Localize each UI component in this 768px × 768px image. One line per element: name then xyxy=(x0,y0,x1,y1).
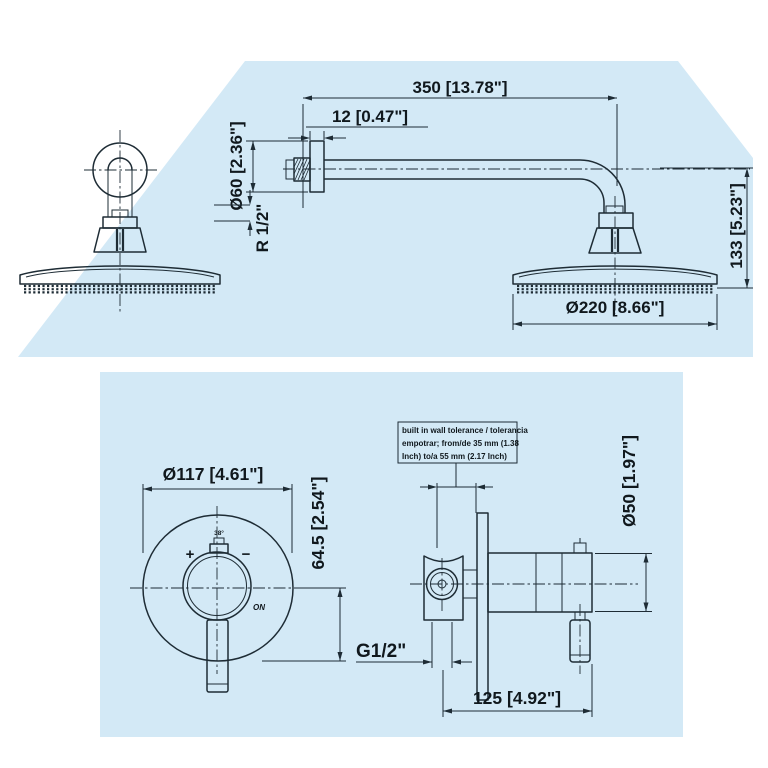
plus-symbol: + xyxy=(186,546,195,563)
dim-thread-r12-label: R 1/2" xyxy=(253,204,272,253)
minus-symbol: − xyxy=(242,546,251,563)
dim-body-length-label: 125 [4.92"] xyxy=(473,688,561,708)
shower-spec-drawing: 350 [13.78"] 12 [0.47"] Ø60 [2.36"] R 1/… xyxy=(0,0,768,768)
on-label: ON xyxy=(253,603,265,612)
dim-body-diameter-label: Ø50 [1.97"] xyxy=(619,435,639,527)
note-line-3: Inch) to/a 55 mm (2.17 Inch) xyxy=(402,452,507,461)
temp-38-label: 38° xyxy=(214,529,224,537)
note-line-1: built in wall tolerance / tolerancia xyxy=(402,426,528,435)
dim-center-to-bottom-label: 64.5 [2.54"] xyxy=(308,477,328,570)
dim-escutcheon-label: Ø117 [4.61"] xyxy=(163,464,264,484)
dim-head-diameter-label: Ø220 [8.66"] xyxy=(566,298,665,317)
dim-drop-height-label: 133 [5.23"] xyxy=(727,183,746,269)
dim-arm-length-label: 350 [13.78"] xyxy=(412,78,507,97)
technical-drawing-page: 350 [13.78"] 12 [0.47"] Ø60 [2.36"] R 1/… xyxy=(0,0,768,768)
note-line-2: empotrar; from/de 35 mm (1.38 xyxy=(402,439,519,448)
dim-flange-thickness-label: 12 [0.47"] xyxy=(332,107,408,126)
dim-thread-g12-label: G1/2" xyxy=(356,641,406,662)
dim-flange-diameter-label: Ø60 [2.36"] xyxy=(227,121,246,210)
